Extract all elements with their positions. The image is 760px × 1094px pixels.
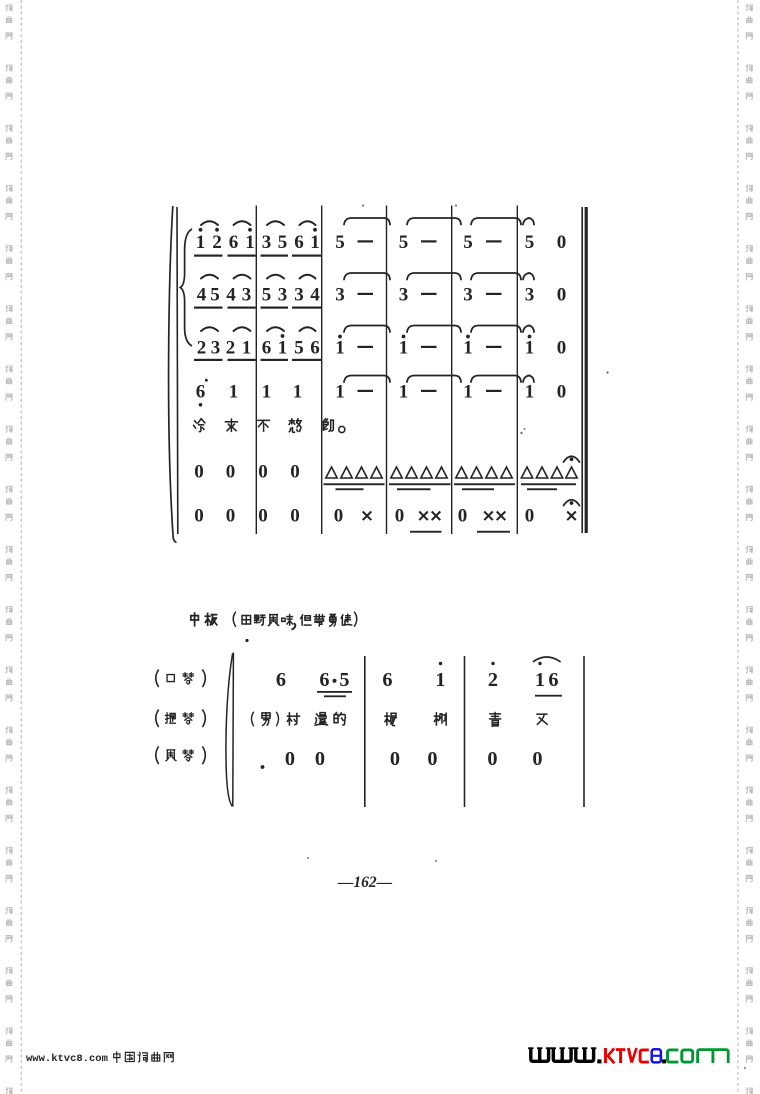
svg-text:1: 1 (399, 382, 409, 403)
svg-text:1: 1 (196, 232, 206, 253)
svg-text:0: 0 (226, 506, 236, 527)
svg-text:5: 5 (339, 669, 349, 691)
svg-text:5: 5 (399, 232, 409, 253)
svg-text:5: 5 (262, 285, 272, 306)
svg-text:1: 1 (525, 338, 535, 359)
svg-text:3: 3 (525, 285, 535, 306)
svg-text:4: 4 (310, 285, 320, 306)
svg-text:—162—: —162— (337, 874, 393, 891)
svg-text:0: 0 (290, 506, 300, 527)
svg-text:6: 6 (262, 338, 272, 359)
svg-text:0: 0 (458, 506, 468, 527)
svg-text:3: 3 (211, 338, 221, 359)
svg-text:0: 0 (487, 748, 497, 770)
svg-text:1: 1 (310, 232, 320, 253)
svg-text:0: 0 (194, 462, 204, 483)
svg-text:0: 0 (532, 748, 542, 770)
svg-text:5: 5 (525, 232, 535, 253)
svg-text:2: 2 (212, 232, 222, 253)
svg-text:4: 4 (197, 285, 207, 306)
svg-text:4: 4 (226, 285, 236, 306)
svg-text:0: 0 (285, 748, 295, 770)
svg-text:6: 6 (196, 382, 206, 403)
svg-text:1: 1 (335, 338, 345, 359)
svg-text:1: 1 (463, 382, 473, 403)
svg-text:1: 1 (278, 338, 288, 359)
svg-text:0: 0 (557, 232, 567, 253)
svg-text:1: 1 (293, 382, 303, 403)
svg-text:0: 0 (290, 462, 300, 483)
svg-text:3: 3 (278, 285, 288, 306)
svg-text:0: 0 (226, 462, 236, 483)
svg-text:0: 0 (557, 382, 567, 403)
svg-text:5: 5 (294, 338, 304, 359)
svg-text:6: 6 (294, 232, 304, 253)
svg-text:1: 1 (229, 382, 239, 403)
svg-text:www.ktvc8.com: www.ktvc8.com (26, 1053, 108, 1065)
svg-text:2: 2 (488, 669, 498, 691)
svg-text:0: 0 (427, 748, 437, 770)
svg-text:1: 1 (463, 338, 473, 359)
svg-text:6: 6 (319, 669, 329, 691)
svg-text:0: 0 (557, 338, 567, 359)
svg-text:1: 1 (399, 338, 409, 359)
svg-text:5: 5 (463, 232, 473, 253)
svg-text:5: 5 (278, 232, 288, 253)
svg-text:6: 6 (229, 232, 239, 253)
svg-text:3: 3 (242, 285, 252, 306)
svg-text:3: 3 (463, 285, 473, 306)
svg-text:1: 1 (262, 382, 272, 403)
svg-text:2: 2 (226, 338, 236, 359)
svg-text:3: 3 (399, 285, 409, 306)
svg-text:1: 1 (435, 669, 445, 691)
svg-text:2: 2 (197, 338, 207, 359)
svg-text:1: 1 (525, 382, 535, 403)
svg-text:6: 6 (382, 669, 392, 691)
svg-text:0: 0 (315, 748, 325, 770)
svg-text:5: 5 (335, 232, 345, 253)
svg-text:1: 1 (535, 669, 545, 691)
svg-text:0: 0 (525, 506, 535, 527)
svg-text:5: 5 (210, 285, 220, 306)
svg-text:0: 0 (334, 506, 344, 527)
svg-text:1: 1 (245, 232, 255, 253)
svg-text:3: 3 (262, 232, 272, 253)
svg-text:1: 1 (335, 382, 345, 403)
svg-text:1: 1 (242, 338, 252, 359)
svg-text:0: 0 (395, 506, 405, 527)
svg-text:0: 0 (194, 506, 204, 527)
svg-text:0: 0 (557, 285, 567, 306)
svg-text:0: 0 (258, 506, 268, 527)
svg-text:6: 6 (310, 338, 320, 359)
svg-text:6: 6 (548, 669, 558, 691)
svg-text:6: 6 (276, 669, 286, 691)
svg-text:3: 3 (335, 285, 345, 306)
svg-text:3: 3 (294, 285, 304, 306)
svg-text:0: 0 (390, 748, 400, 770)
svg-text:0: 0 (258, 462, 268, 483)
